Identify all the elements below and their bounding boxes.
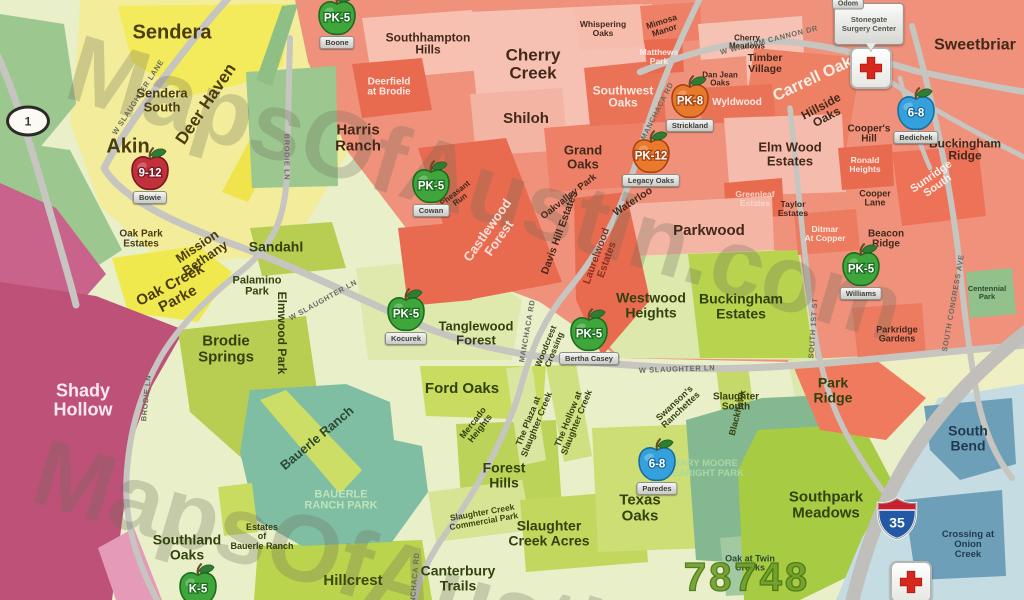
school-name-badge: Paredes [636,482,677,495]
school-name-badge: Bowie [133,191,167,204]
austin-78748-neighborhood-map: MapsOfAustin.com MapsOfAustin.com Sender… [0,0,1024,600]
loop-1-highway-shield: 1 [6,106,50,137]
school-grade-range: PK-5 [576,328,603,340]
school-name-badge: Legacy Oaks [622,174,680,187]
hospital-icon [850,47,892,89]
school-name-badge: Strickland [666,119,714,132]
interstate-35-shield: 35 [876,497,918,546]
school-name-badge: Boone [319,36,354,49]
school-grade-range: PK-5 [418,180,445,192]
school-grade-range: PK-12 [635,150,668,162]
school-grade-range: PK-5 [393,308,420,320]
school-name-badge: Williams [840,287,882,300]
school-name-badge: Bedichek [893,131,938,144]
interstate-shield-icon: 35 [876,497,918,541]
zip-code-label: 78748 [684,556,810,600]
interstate-35-label: 35 [889,515,905,531]
school-name-badge: Kocurek [385,332,427,345]
school-name-badge: Cowan [413,204,450,217]
partial-school-badge: Odom [832,0,864,10]
school-grade-range: 6-8 [649,458,666,470]
school-grade-range: K-5 [189,583,208,595]
school-grade-range: 6-8 [908,107,925,119]
apple-grade-icon: K-5 [176,561,220,600]
hospital-icon [890,561,932,600]
school-grade-range: PK-8 [677,95,704,107]
callout-pointer [866,43,876,51]
school-grade-range: PK-5 [324,12,351,24]
school-name-badge: Bertha Casey [559,352,619,365]
callout-text: Stonegate Surgery Center [842,15,896,33]
loop-1-label: 1 [25,114,32,128]
school-grade-range: PK-5 [848,263,875,275]
school-grade-range: 9-12 [138,167,161,179]
map-regions-canvas [0,0,1024,600]
